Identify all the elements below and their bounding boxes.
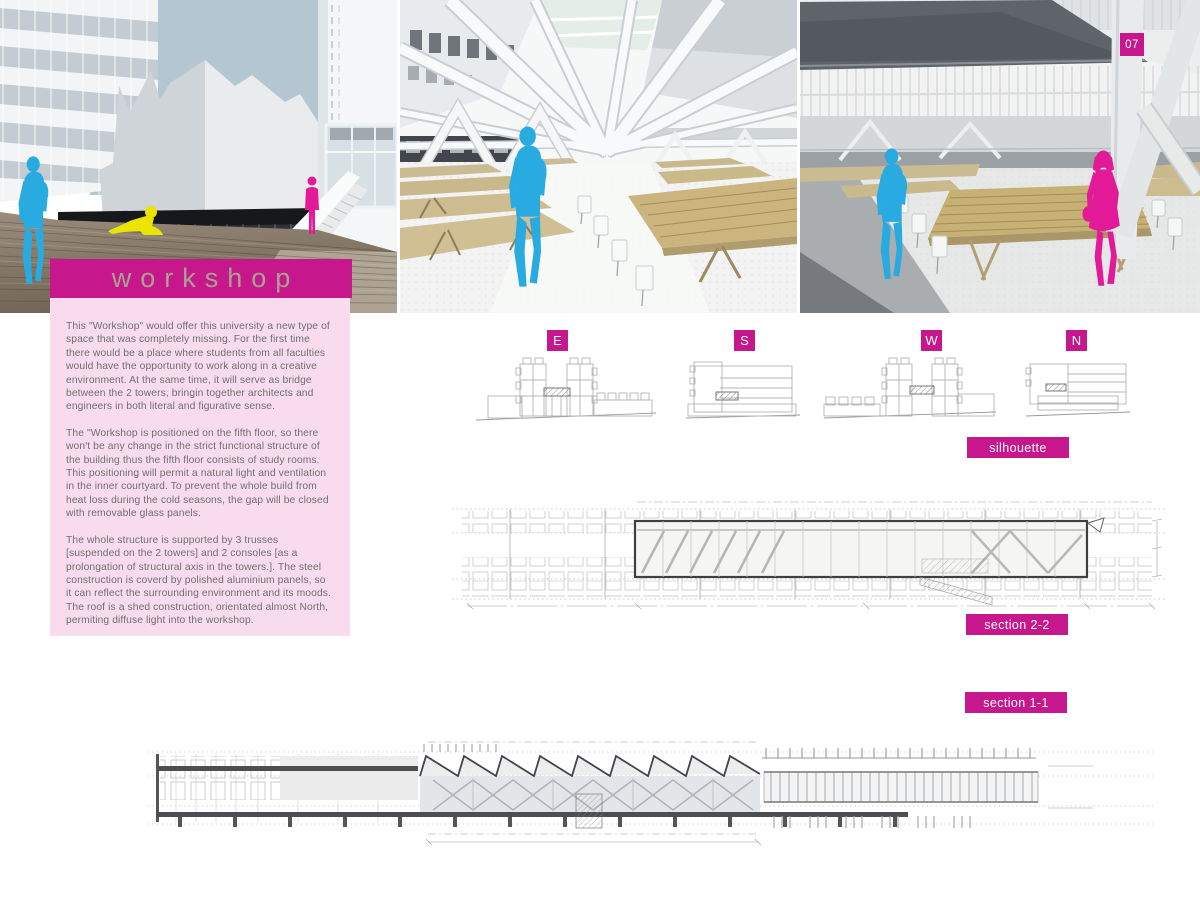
- description-paragraph: This "Workshop" would offer this univers…: [66, 320, 332, 414]
- page-number: 07: [1125, 39, 1139, 51]
- description-paragraph: The whole structure is supported by 3 tr…: [66, 534, 332, 628]
- elevation-tag-north: N: [1066, 330, 1087, 351]
- elevation-tag-south: S: [734, 330, 755, 351]
- description-paragraph: The "Workshop is positioned on the fifth…: [66, 427, 332, 521]
- section-2-2-drawing: [452, 497, 1165, 619]
- elevation-tag-east: E: [547, 330, 568, 351]
- description-panel: This "Workshop" would offer this univers…: [50, 298, 350, 636]
- elevation-drawing-west: [820, 352, 1000, 432]
- section-2-2-caption: section 2-2: [966, 614, 1068, 635]
- portfolio-page: 07 workshop This "Workshop" would offer …: [0, 0, 1200, 900]
- section-1-1-drawing: [148, 736, 1156, 853]
- elevation-tag-west: W: [921, 330, 942, 351]
- workshop-banner: workshop: [50, 259, 352, 298]
- silhouette-caption: silhouette: [967, 437, 1069, 458]
- elevation-drawing-south: [680, 352, 805, 432]
- render-interior-trusses: [400, 0, 797, 313]
- elevation-drawing-north: [1018, 352, 1138, 432]
- elevation-drawing-east: [470, 352, 660, 432]
- page-number-badge: 07: [1120, 33, 1144, 56]
- section-1-1-caption: section 1-1: [965, 692, 1067, 713]
- page-title: workshop: [103, 263, 300, 294]
